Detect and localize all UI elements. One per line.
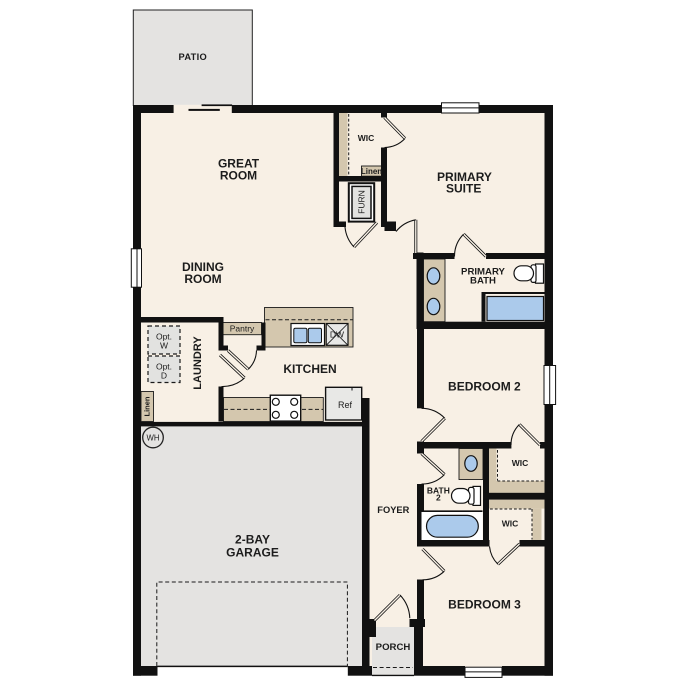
svg-text:WIC: WIC bbox=[358, 133, 375, 143]
svg-text:Linen: Linen bbox=[143, 396, 152, 416]
svg-text:LAUNDRY: LAUNDRY bbox=[192, 336, 204, 390]
svg-text:KITCHEN: KITCHEN bbox=[283, 362, 336, 376]
svg-text:FURN: FURN bbox=[357, 190, 367, 214]
svg-text:DW: DW bbox=[330, 330, 344, 340]
svg-text:PORCH: PORCH bbox=[376, 642, 411, 653]
svg-text:BEDROOM 2: BEDROOM 2 bbox=[448, 379, 521, 393]
svg-text:2: 2 bbox=[436, 493, 441, 503]
svg-text:ROOM: ROOM bbox=[184, 272, 221, 286]
svg-text:WIC: WIC bbox=[502, 519, 519, 529]
svg-text:Linen: Linen bbox=[361, 167, 382, 176]
svg-text:WIC: WIC bbox=[512, 458, 529, 468]
svg-text:SUITE: SUITE bbox=[446, 182, 481, 196]
svg-text:BATH: BATH bbox=[470, 275, 496, 286]
svg-text:2-BAY: 2-BAY bbox=[235, 533, 270, 547]
svg-text:D: D bbox=[161, 371, 167, 381]
svg-text:Ref: Ref bbox=[338, 400, 353, 410]
svg-text:GARAGE: GARAGE bbox=[226, 546, 279, 560]
svg-text:FOYER: FOYER bbox=[377, 505, 409, 515]
svg-text:W: W bbox=[160, 341, 168, 351]
svg-text:BEDROOM 3: BEDROOM 3 bbox=[448, 598, 521, 612]
svg-text:WH: WH bbox=[147, 433, 160, 442]
svg-text:ROOM: ROOM bbox=[220, 169, 257, 183]
svg-text:PATIO: PATIO bbox=[179, 52, 208, 62]
svg-text:Pantry: Pantry bbox=[230, 324, 255, 334]
